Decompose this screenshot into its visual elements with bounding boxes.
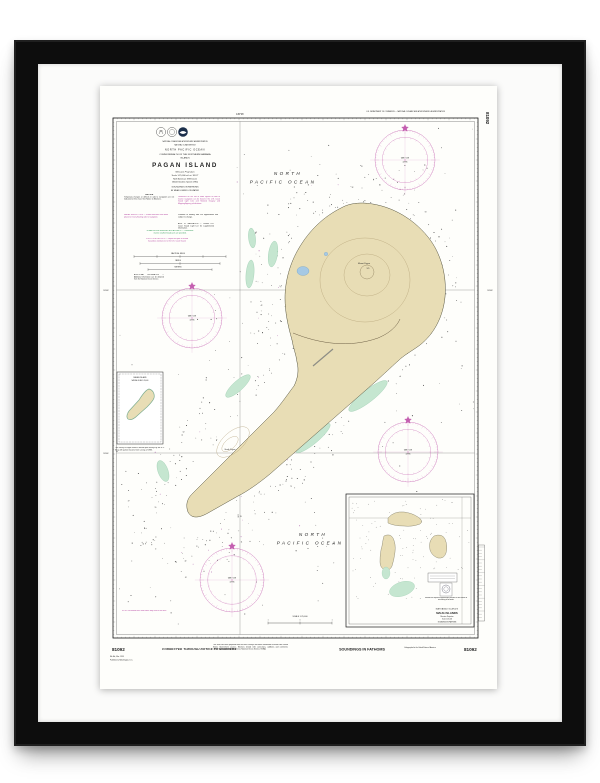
top-agency-line: U.S. DEPARTMENT OF COMMERCE — NATIONAL O… <box>366 110 446 113</box>
agency2: NATIONAL OCEAN SERVICE <box>174 144 195 147</box>
publisher-note: Published at Washington, D.C. <box>110 658 133 661</box>
svg-text:NAUTICAL MILES: NAUTICAL MILES <box>171 252 186 255</box>
left-inset-title: PAGAN ISLAND <box>133 376 147 379</box>
title-scale: Scale 1:25,000 at Lat. 18°07' <box>172 174 199 177</box>
pollution-note: POLLUTION REPORTS — Report all spills of… <box>142 238 312 278</box>
svg-text:NORTH: NORTH <box>274 171 302 176</box>
lat-label-left-1: 18°08' <box>103 290 109 292</box>
svg-text:(1999): (1999) <box>406 453 411 455</box>
svg-text:55: 55 <box>155 507 157 509</box>
svg-text:(1999): (1999) <box>230 581 235 583</box>
svg-text:33: 33 <box>332 455 334 457</box>
title-region1: COMMONWEALTH OF THE NORTHERN MARIANA <box>159 153 211 156</box>
svg-text:70: 70 <box>361 166 363 168</box>
chart-number-bottom-right: 81092 <box>464 647 477 652</box>
lat-label-right-1: 18°08' <box>487 290 493 292</box>
svg-text:62: 62 <box>183 432 185 434</box>
svg-text:METERS: METERS <box>174 267 182 269</box>
title-datum2: (World Geodetic System 1984) <box>172 181 198 184</box>
soundings-banner: SOUNDINGS IN FATHOMS <box>339 648 385 652</box>
maug-inset: Dashed lines represent approximate posit… <box>346 494 497 637</box>
maug-title: MAUG ISLANDS <box>436 611 458 615</box>
title-block: NATIONAL OCEANIC AND ATMOSPHERIC ADMINIS… <box>152 127 218 192</box>
side-chart-number: 81092 <box>485 112 490 125</box>
bottom-margin: 81092 8th Ed., Mar. 1999 Published at Wa… <box>110 644 477 689</box>
svg-text:52: 52 <box>142 544 144 546</box>
svg-text:(1999): (1999) <box>403 161 408 163</box>
agency1: NATIONAL OCEANIC AND ATMOSPHERIC ADMINIS… <box>162 140 208 143</box>
commerce-seal-icon <box>159 130 163 134</box>
svg-text:32: 32 <box>352 187 354 189</box>
title-region2: ISLANDS <box>180 157 190 160</box>
svg-text:42: 42 <box>185 577 187 579</box>
maug-sub2: Scale 1:25,000 <box>442 619 452 621</box>
svg-text:66: 66 <box>379 185 381 187</box>
svg-text:11: 11 <box>241 542 243 544</box>
title-soundings2: AT MEAN LOWER LOW WATER <box>171 189 199 192</box>
svg-text:PACIFIC OCEAN: PACIFIC OCEAN <box>250 180 317 185</box>
svg-text:(1999): (1999) <box>190 319 195 321</box>
left-inset-caption: The survey of Pagan Island is based upon… <box>115 447 290 507</box>
svg-text:59: 59 <box>425 211 427 213</box>
edition-note: 8th Ed., Mar. 1999 <box>110 655 124 658</box>
chart-number-bottom-left: 81092 <box>112 647 125 652</box>
picture-frame: U.S. DEPARTMENT OF COMMERCE — NATIONAL O… <box>14 40 586 746</box>
top-meridian-label: 145°46' <box>236 114 244 116</box>
mat-board: U.S. DEPARTMENT OF COMMERCE — NATIONAL O… <box>38 64 562 722</box>
ocean-label-bottom: NORTH PACIFIC OCEAN <box>277 532 344 546</box>
svg-text:59: 59 <box>240 516 242 518</box>
agency-logos <box>156 127 187 137</box>
title-ocean: NORTH PACIFIC OCEAN <box>165 149 205 152</box>
chart-paper: U.S. DEPARTMENT OF COMMERCE — NATIONAL O… <box>100 86 497 689</box>
mount-pagan-label: Mount Pagan <box>358 262 371 265</box>
svg-text:6: 6 <box>279 359 280 361</box>
chart-svg: U.S. DEPARTMENT OF COMMERCE — NATIONAL O… <box>100 86 497 689</box>
svg-text:PACIFIC OCEAN: PACIFIC OCEAN <box>277 541 344 546</box>
maug-note: Dashed lines represent approximate posit… <box>424 597 497 637</box>
title-soundings1: SOUNDINGS IN FATHOMS <box>171 186 199 189</box>
nos-seal-icon <box>167 127 176 136</box>
svg-text:34: 34 <box>303 479 305 481</box>
elevation-label: 570 <box>367 268 370 270</box>
framed-chart-photo: U.S. DEPARTMENT OF COMMERCE — NATIONAL O… <box>0 0 600 783</box>
maug-legend-box <box>428 573 457 582</box>
title-datum1: North American 1983 Datum <box>173 178 197 181</box>
svg-text:NORTH: NORTH <box>299 532 327 537</box>
svg-text:0: 0 <box>300 620 301 622</box>
caution-body: Temporary changes or defects in aids to … <box>124 196 174 201</box>
svg-text:32: 32 <box>131 543 133 545</box>
chart-title: PAGAN ISLAND <box>152 162 218 169</box>
lat-label-left-2: 18°06' <box>103 453 109 455</box>
title-projection: Mercator Projection <box>176 171 196 174</box>
svg-text:1: 1 <box>332 620 333 622</box>
ocean-label-top: NORTH PACIFIC OCEAN <box>250 171 317 185</box>
svg-text:37: 37 <box>237 517 239 519</box>
svg-text:SCALE 1:25,000: SCALE 1:25,000 <box>293 615 309 618</box>
svg-text:YARDS: YARDS <box>175 259 182 262</box>
svg-text:75: 75 <box>290 486 292 488</box>
svg-text:42: 42 <box>185 560 187 562</box>
svg-text:42: 42 <box>261 305 263 307</box>
svg-text:99: 99 <box>438 236 440 238</box>
